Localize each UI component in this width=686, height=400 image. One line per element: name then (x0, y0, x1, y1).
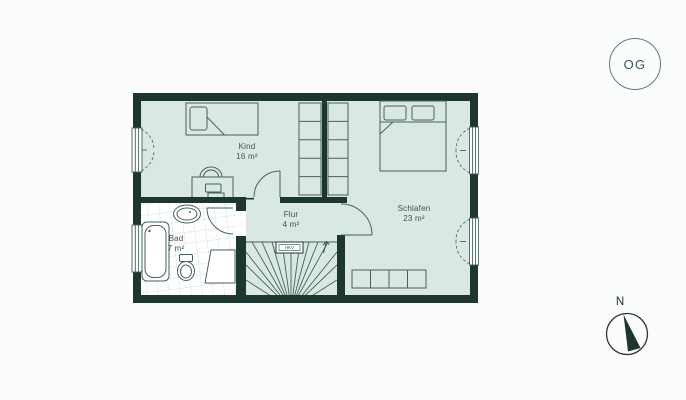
north-needle (624, 315, 641, 352)
toilet-icon (178, 255, 195, 281)
hkv-box: HKV (276, 242, 303, 253)
floor-plan-drawing: HKV (0, 0, 686, 400)
bathtub-icon (142, 222, 169, 281)
floor-badge: OG (609, 38, 661, 90)
compass-icon (607, 314, 648, 355)
hkv-label: HKV (285, 245, 294, 250)
floor-plan: HKV Kind 16 m² Schlafen 23 m² Bad 7 m² F… (0, 0, 686, 400)
compass-north-label: N (616, 296, 624, 308)
sink-icon (174, 205, 201, 223)
